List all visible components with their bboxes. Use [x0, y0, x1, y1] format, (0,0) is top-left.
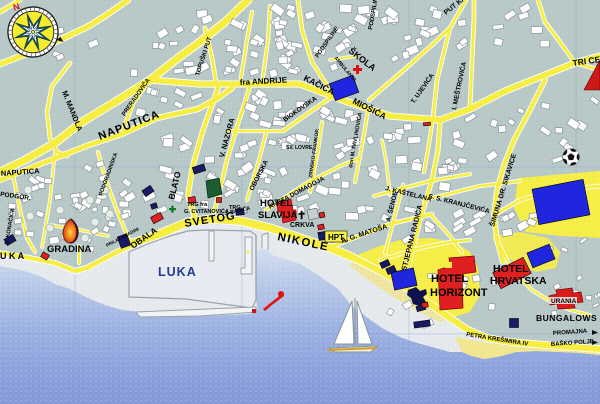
svg-text:GRADINA: GRADINA: [47, 244, 91, 255]
svg-text:LUKA: LUKA: [158, 265, 197, 279]
svg-text:SV. LOVRE: SV. LOVRE: [286, 145, 313, 151]
svg-text:✝: ✝: [297, 210, 306, 222]
svg-text:TRG fra: TRG fra: [187, 202, 208, 208]
svg-text:SLAVIJA: SLAVIJA: [258, 210, 298, 221]
svg-text:HOTEL: HOTEL: [260, 198, 292, 209]
svg-text:U K A: U K A: [0, 251, 25, 261]
svg-text:HORIZONT: HORIZONT: [430, 287, 488, 299]
svg-text:URANIA: URANIA: [551, 298, 577, 305]
svg-text:BUNGALOWS: BUNGALOWS: [536, 313, 597, 323]
svg-text:HRVATSKA: HRVATSKA: [490, 275, 547, 287]
svg-text:CRKVA: CRKVA: [290, 222, 314, 229]
svg-text:HOTEL: HOTEL: [431, 273, 469, 285]
svg-text:HOTEL: HOTEL: [493, 263, 529, 275]
